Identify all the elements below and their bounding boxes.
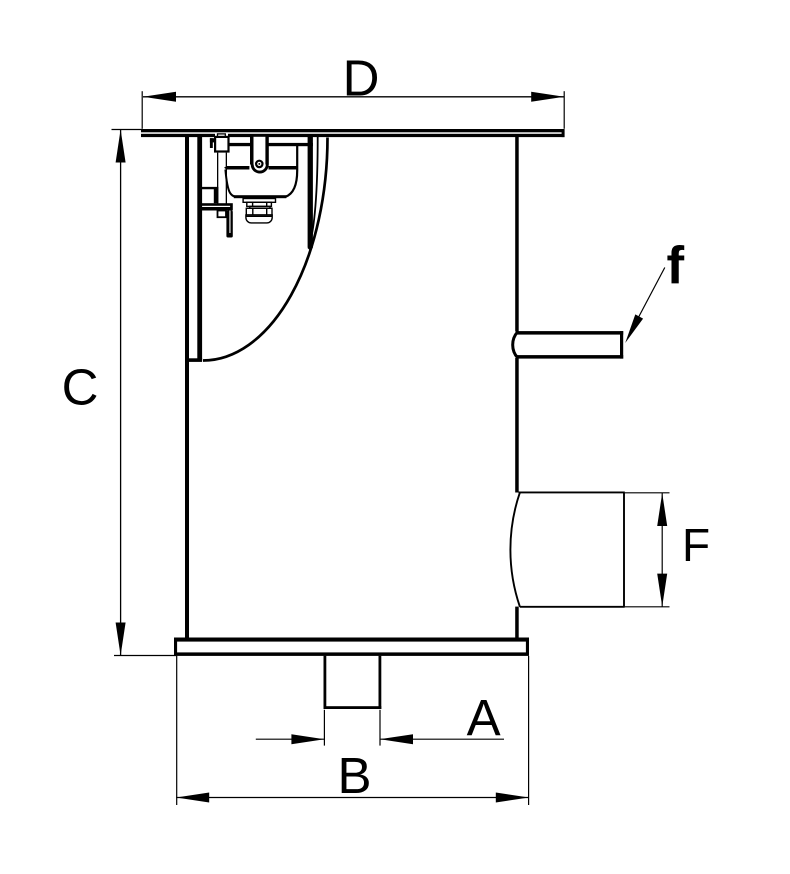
svg-text:C: C <box>62 359 99 416</box>
svg-text:F: F <box>682 519 710 571</box>
svg-text:A: A <box>467 689 501 746</box>
svg-text:D: D <box>343 49 380 106</box>
svg-text:f: f <box>667 237 685 296</box>
svg-text:B: B <box>337 747 371 804</box>
